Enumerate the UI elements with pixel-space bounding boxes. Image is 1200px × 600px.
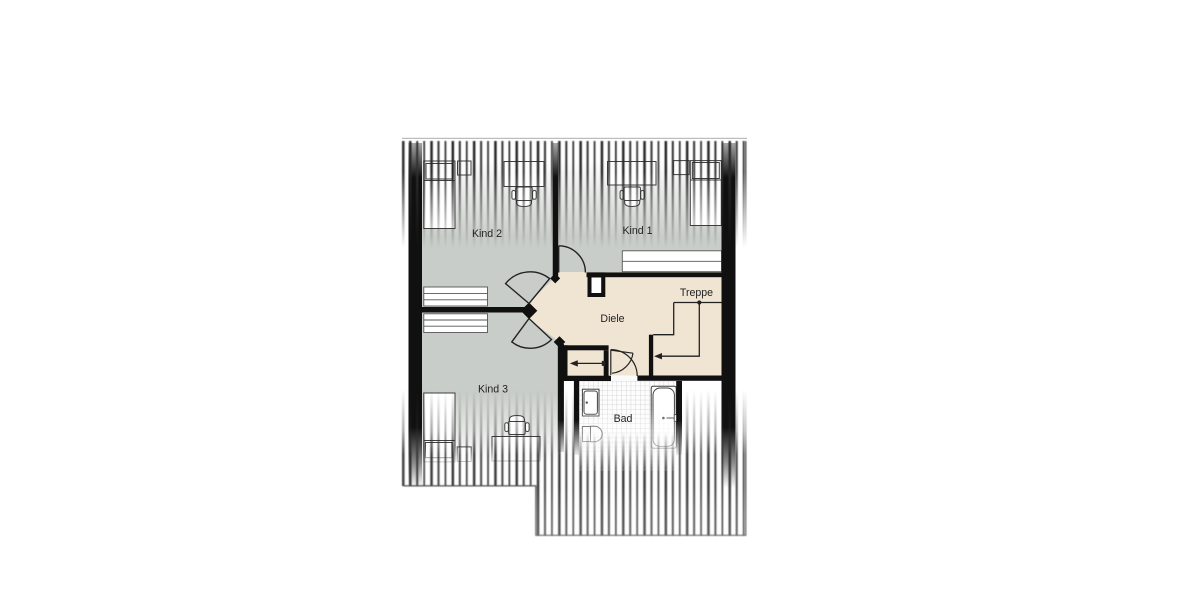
svg-text:Kind 1: Kind 1 — [622, 225, 652, 237]
svg-text:Kind 3: Kind 3 — [478, 384, 508, 396]
svg-text:Bad: Bad — [614, 413, 633, 425]
svg-text:Treppe: Treppe — [680, 287, 713, 299]
svg-text:Diele: Diele — [600, 313, 624, 325]
svg-text:Kind 2: Kind 2 — [472, 228, 502, 240]
